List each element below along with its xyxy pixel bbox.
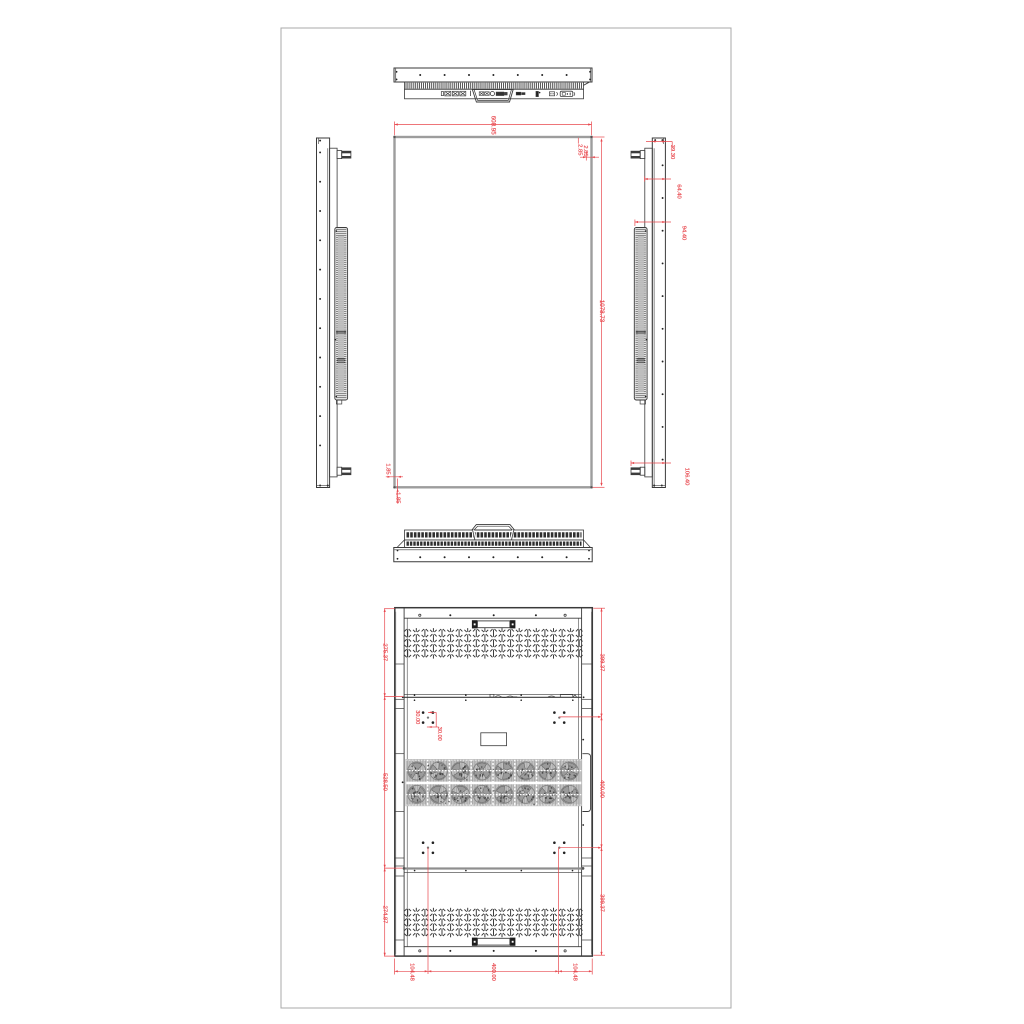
svg-text:30.00: 30.00 (436, 727, 442, 741)
svg-text:106.40: 106.40 (684, 468, 690, 486)
svg-text:399.37: 399.37 (599, 654, 605, 672)
svg-text:64.40: 64.40 (676, 184, 682, 199)
svg-text:94.40: 94.40 (681, 226, 687, 241)
svg-text:39.30: 39.30 (669, 145, 675, 160)
svg-text:104.48: 104.48 (571, 963, 577, 981)
svg-text:2.85: 2.85 (582, 145, 588, 156)
svg-text:400.00: 400.00 (599, 780, 605, 798)
svg-text:608.95: 608.95 (490, 116, 497, 135)
svg-text:399.37: 399.37 (599, 894, 605, 912)
svg-text:104.48: 104.48 (408, 963, 414, 981)
svg-text:528.50: 528.50 (382, 773, 388, 791)
svg-text:1078.73: 1078.73 (598, 300, 605, 323)
svg-text:1.85: 1.85 (384, 463, 390, 474)
svg-text:30.00: 30.00 (414, 710, 420, 724)
svg-text:1.85: 1.85 (394, 492, 400, 503)
svg-text:275.37: 275.37 (382, 643, 388, 661)
svg-text:2.85: 2.85 (577, 144, 583, 155)
svg-text:400.00: 400.00 (490, 963, 496, 981)
svg-text:274.87: 274.87 (382, 906, 388, 924)
